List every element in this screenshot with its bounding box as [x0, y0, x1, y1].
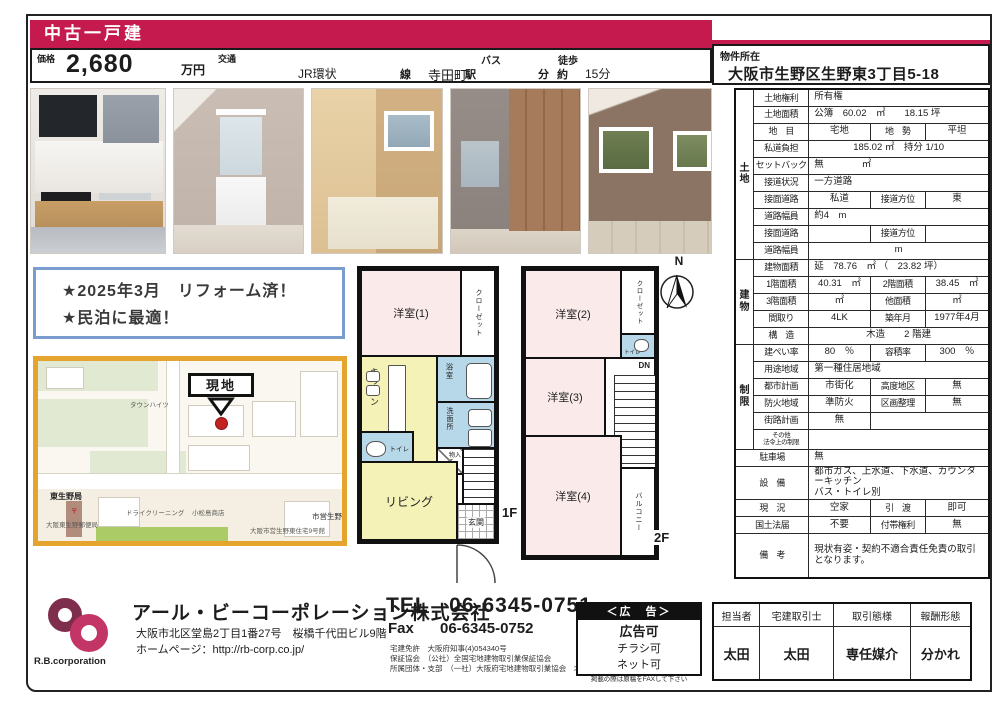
- agent-header: 担当者: [713, 603, 760, 627]
- spec-label: 私道負担: [753, 140, 808, 157]
- spec-label: 街路計画: [753, 412, 808, 429]
- room-label: リビング: [385, 493, 433, 510]
- line-suffix: 線: [400, 66, 411, 82]
- tel-label: TEL: [386, 594, 428, 617]
- spec-value: 延 78.76 ㎡ （ 23.82 坪）: [809, 259, 989, 276]
- spec-value: 空家: [809, 500, 870, 517]
- tel-line: TEL 06-6345-0751: [386, 594, 592, 618]
- site-marker-label: 現地: [188, 373, 254, 397]
- sink: [468, 409, 492, 427]
- fax-number: 06-6345-0752: [440, 620, 533, 637]
- spec-value: 無: [809, 449, 989, 466]
- spec-value: 約4 m: [809, 208, 989, 225]
- spec-label: 間取り: [753, 310, 808, 327]
- agent-header: 報酬形態: [910, 603, 971, 627]
- ad-line: チラシ可: [578, 640, 700, 656]
- room-label: トイレ: [390, 443, 410, 453]
- spec-label: 接面道路: [753, 191, 808, 208]
- floor-label-1f: 1F: [500, 505, 519, 520]
- spec-value: [870, 412, 989, 429]
- spec-label: 容積率: [870, 344, 925, 361]
- room-western-3: 洋室(3): [524, 357, 606, 437]
- room-label: 玄関: [467, 517, 485, 528]
- floorplan-2f: 洋室(2) クローゼット トイレ 洋室(3) DN 洋室(4) バルコニー: [521, 266, 659, 560]
- spec-value: 宅地: [809, 123, 870, 140]
- location-map: タウンハイツ 東生野局 〒 大阪東生野郵便局 ドライクリーニング 小松島商店 市…: [33, 356, 347, 546]
- room-label: バルコニー: [633, 492, 643, 532]
- spec-label: 建ぺい率: [753, 344, 808, 361]
- ad-box-title: ＜広 告＞: [578, 604, 700, 620]
- agent-value: 専任媒介: [834, 627, 911, 681]
- ad-permission-box: ＜広 告＞ 広告可 チラシ可 ネット可 掲載の際は原稿をFAXして下さい: [576, 602, 702, 676]
- spec-label: 建物面積: [753, 259, 808, 276]
- spec-table-body: 土 地土地権利所有権土地面積公簿 60.02 ㎡ 18.15 坪地 目宅地地 勢…: [735, 89, 989, 578]
- stove: [366, 385, 380, 396]
- toilet-1f: トイレ: [360, 431, 414, 463]
- spec-label: 他面積: [870, 293, 925, 310]
- spec-label: セットバック: [753, 157, 808, 174]
- price-label: 価格: [37, 52, 55, 65]
- license-line: 保証協会 （公社）全国宅地建物取引業保証協会: [390, 654, 596, 664]
- spec-value: 40.31 ㎡: [809, 276, 870, 293]
- floor-label-2f: 2F: [652, 530, 671, 545]
- spec-value: 所有権: [809, 89, 989, 106]
- entrance: 玄関: [456, 503, 496, 541]
- spec-value: 都市ガス、上水道、下水道、カウンターキッチン バス・トイレ別: [809, 466, 989, 500]
- spec-group-label: 建 物: [735, 259, 753, 344]
- map-building: [46, 367, 84, 389]
- spec-group-label: 土 地: [735, 89, 753, 259]
- spec-value: 無: [925, 378, 989, 395]
- spec-label: 構 造: [753, 327, 808, 344]
- spec-value: 80 ％: [809, 344, 870, 361]
- spec-value: 1977年4月: [925, 310, 989, 327]
- kitchen-counter: [388, 365, 406, 433]
- spec-value: [809, 429, 989, 449]
- spec-value: 平坦: [925, 123, 989, 140]
- living-room: リビング: [360, 461, 458, 541]
- location-label: 物件所在: [720, 48, 760, 63]
- ad-line: 広告可: [578, 621, 700, 640]
- location-box: 物件所在 大阪市生野区生野東3丁目5-18: [712, 44, 990, 85]
- spec-label: 国土法届: [735, 517, 809, 534]
- site-dot: [215, 417, 228, 430]
- room-label: クローゼット: [473, 289, 483, 337]
- price-unit: 万円: [181, 61, 205, 78]
- post-mark-icon: 〒: [71, 505, 78, 515]
- room-label: クローゼット: [633, 280, 643, 325]
- bathroom-photo: [311, 88, 443, 254]
- spec-label: 現 況: [735, 500, 809, 517]
- tel-number: 06-6345-0751: [449, 594, 592, 617]
- spec-value: 市街化: [809, 378, 870, 395]
- toilet-2f: トイレ: [620, 333, 656, 359]
- spec-value: 185.02 ㎡ 持分 1/10: [809, 140, 989, 157]
- spec-label: 接面道路: [753, 225, 808, 242]
- station-suffix: 駅: [465, 66, 476, 82]
- bus-label: バス: [481, 52, 501, 67]
- agent-value: 太田: [760, 627, 834, 681]
- spec-label: 地 勢: [870, 123, 925, 140]
- stove: [366, 371, 380, 382]
- spec-label: 1階面積: [753, 276, 808, 293]
- company-homepage: ホームページ：http://rb-corp.co.jp/: [136, 641, 304, 657]
- spec-value: 第一種住居地域: [809, 361, 989, 378]
- ad-note: 掲載の際は原稿をFAXして下さい: [578, 673, 700, 683]
- agent-table: 担当者 宅建取引士 取引態様 報酬形態 太田 太田 専任媒介 分かれ: [712, 602, 972, 681]
- spec-label: 築年月: [870, 310, 925, 327]
- spec-value: 無: [809, 412, 870, 429]
- spec-label: 都市計画: [753, 378, 808, 395]
- photo-strip: [30, 88, 712, 254]
- spec-label: 設 備: [735, 466, 809, 500]
- category-banner: 中古一戸建: [30, 20, 712, 48]
- highlight-line-2: ★民泊に最適！: [62, 305, 342, 332]
- toilet-bowl: [366, 441, 386, 457]
- room-western-1: 洋室(1): [360, 269, 462, 357]
- spec-label: 接道状況: [753, 174, 808, 191]
- bathtub: [466, 363, 492, 399]
- room-label: 洋室(1): [393, 305, 428, 321]
- room-label: 洗面所: [444, 407, 454, 431]
- map-building: [188, 445, 250, 471]
- agent-value-row: 太田 太田 専任媒介 分かれ: [713, 627, 971, 681]
- map-building: [300, 371, 338, 437]
- compass-icon: [657, 268, 701, 314]
- approx-label: 約: [557, 66, 568, 82]
- spec-value: m: [809, 242, 989, 259]
- line-name: JR環状: [298, 65, 337, 82]
- spec-value: 4LK: [809, 310, 870, 327]
- agent-header: 宅建取引士: [760, 603, 834, 627]
- north-label: N: [656, 254, 702, 268]
- map-road: [166, 361, 180, 473]
- ad-line: ネット可: [578, 656, 700, 672]
- room-label: 洋室(3): [547, 389, 582, 405]
- map-label: 小松島商店: [192, 507, 225, 517]
- stairs-down-label: DN: [638, 361, 650, 370]
- agent-value: 分かれ: [910, 627, 971, 681]
- spec-value: 即可: [925, 500, 989, 517]
- spec-value: ㎡: [809, 293, 870, 310]
- room-label: 洋室(4): [555, 488, 590, 504]
- map-label: タウンハイツ: [130, 399, 169, 409]
- spec-value: [925, 225, 989, 242]
- spec-label: 接道方位: [870, 225, 925, 242]
- closet-1f: クローゼット: [460, 269, 496, 357]
- spec-value: 準防火: [809, 395, 870, 412]
- spec-value: 無 ㎡: [809, 157, 989, 174]
- toilet-bowl: [634, 339, 649, 352]
- spec-label: 区画整理: [870, 395, 925, 412]
- spec-value: 現状有姿・契約不適合責任免責の取引となります。: [809, 534, 989, 578]
- flyer-page: 中古一戸建 価格 2,680 万円 交通 バス 徒歩 JR環状 線 寺田町 駅 …: [0, 0, 1000, 706]
- spec-value: 無: [925, 517, 989, 534]
- price-value: 2,680: [66, 50, 134, 79]
- stairs-up: [462, 447, 496, 505]
- north-compass: N: [656, 254, 702, 316]
- closet-2f: クローゼット: [620, 269, 656, 335]
- company-address: 大阪市北区堂島2丁目1番27号 桜橋千代田ビル9階: [136, 625, 387, 641]
- spec-label: 接道方位: [870, 191, 925, 208]
- license-block: 宅建免許 大阪府知事(4)054340号 保証協会 （公社）全国宅地建物取引業保…: [390, 644, 596, 674]
- room-western-2: 洋室(2): [524, 269, 622, 359]
- spec-label: 道路幅員: [753, 208, 808, 225]
- spec-label: 高度地区: [870, 378, 925, 395]
- spec-value: [809, 225, 870, 242]
- site-arrow-icon: [206, 397, 236, 417]
- highlights-box: ★2025年3月 リフォーム済！ ★民泊に最適！: [33, 267, 345, 339]
- map-label: 東生野局: [50, 491, 82, 502]
- room-closet-photo: [450, 88, 582, 254]
- logo-caption: R.B.corporation: [34, 656, 106, 667]
- kitchen-photo: [30, 88, 166, 254]
- spec-label: 2階面積: [870, 276, 925, 293]
- spec-value: ㎡: [925, 293, 989, 310]
- map-park: [96, 527, 228, 543]
- spec-label: 土地面積: [753, 106, 808, 123]
- spec-label: 道路幅員: [753, 242, 808, 259]
- western-room-photo: [588, 88, 712, 254]
- spec-label: 防火地域: [753, 395, 808, 412]
- room-label: 洋室(2): [555, 306, 590, 322]
- transport-box: 交通 バス 徒歩 JR環状 線 寺田町 駅 分 約 15分: [213, 48, 712, 83]
- map-building: [252, 401, 296, 437]
- spec-value: 不要: [809, 517, 870, 534]
- room-western-4: 洋室(4): [524, 435, 622, 557]
- spec-label: 引 渡: [870, 500, 925, 517]
- map-label: 大阪市営生野東住宅9号館: [250, 525, 325, 535]
- room-label: 浴室: [444, 363, 455, 380]
- room-label: 物入: [449, 450, 461, 459]
- spec-table: 土 地土地権利所有権土地面積公簿 60.02 ㎡ 18.15 坪地 目宅地地 勢…: [734, 88, 990, 579]
- spec-label: 用途地域: [753, 361, 808, 378]
- walk-time: 15分: [585, 65, 610, 82]
- price-box: 価格 2,680 万円: [30, 48, 215, 83]
- spec-value: 公簿 60.02 ㎡ 18.15 坪: [809, 106, 989, 123]
- fax-line: Fax 06-6345-0752: [388, 620, 533, 637]
- spec-value: 38.45 ㎡: [925, 276, 989, 293]
- spec-label: 駐車場: [735, 449, 809, 466]
- vanity-photo: [173, 88, 305, 254]
- station-name: 寺田町: [428, 65, 467, 84]
- spec-label: 地 目: [753, 123, 808, 140]
- agent-header: 取引態様: [834, 603, 911, 627]
- property-address: 大阪市生野区生野東3丁目5-18: [728, 63, 939, 84]
- spec-label: 付帯権利: [870, 517, 925, 534]
- spec-value: 300 ％: [925, 344, 989, 361]
- spec-value: 無: [925, 395, 989, 412]
- spec-value: 一方道路: [809, 174, 989, 191]
- bathroom: 浴室: [436, 355, 496, 403]
- highlight-line-1: ★2025年3月 リフォーム済！: [62, 278, 342, 305]
- minutes-label: 分: [538, 66, 549, 82]
- spec-label: 備 考: [735, 534, 809, 578]
- map-label: 大阪東生野郵便局: [46, 519, 98, 529]
- spec-value: 木造 2 階建: [809, 327, 989, 344]
- spec-label: 3階面積: [753, 293, 808, 310]
- map-label: 市営生野: [312, 511, 342, 522]
- spec-label: その他 法令上の制限: [753, 429, 808, 449]
- entrance-door-arc: [455, 543, 497, 585]
- walk-label: 徒歩: [558, 52, 578, 67]
- spec-label: 土地権利: [753, 89, 808, 106]
- map-label: ドライクリーニング: [126, 507, 184, 517]
- logo-ring-icon: [70, 614, 108, 652]
- spec-value: 東: [925, 191, 989, 208]
- spec-value: 私道: [809, 191, 870, 208]
- floorplan-1f: 洋室(1) クローゼット キッチン 浴室 洗面所 トイレ 物入 UP リビング: [357, 266, 499, 544]
- agent-value: 太田: [713, 627, 760, 681]
- license-line: 宅建免許 大阪府知事(4)054340号: [390, 644, 596, 654]
- washroom: 洗面所: [436, 401, 496, 449]
- transport-label: 交通: [218, 52, 236, 65]
- spec-group-label: 制 限: [735, 344, 753, 449]
- washer: [468, 429, 492, 447]
- license-line: 所属団体・支部 （一社）大阪府宅地建物取引業協会 北支部: [390, 664, 596, 674]
- company-logo: R.B.corporation: [40, 596, 130, 672]
- agent-header-row: 担当者 宅建取引士 取引態様 報酬形態: [713, 603, 971, 627]
- fax-label: Fax: [388, 620, 414, 637]
- balcony: バルコニー: [620, 467, 656, 557]
